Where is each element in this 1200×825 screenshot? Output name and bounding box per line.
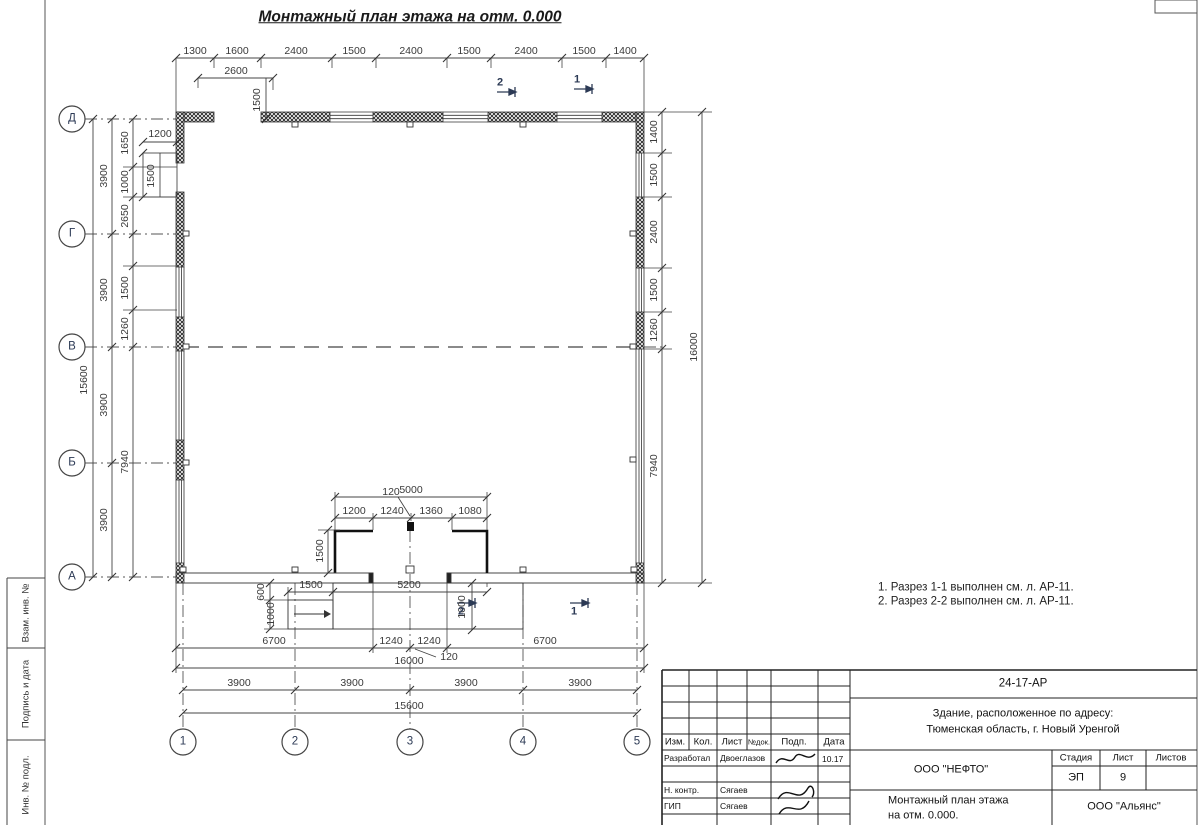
- object-name: Тюменская область, г. Новый Уренгой: [926, 725, 1119, 736]
- stamp-name: Сягаев: [720, 802, 748, 811]
- dim-label: 3900: [340, 678, 363, 689]
- sheet-frame: [45, 0, 1197, 825]
- axis-col-label: 5: [634, 736, 640, 748]
- doc-number: 24-17-АР: [999, 678, 1048, 690]
- drawing-name: на отм. 0.000.: [888, 811, 958, 822]
- strip-label-podpis: Подпись и дата: [21, 660, 31, 728]
- dim-label: 2400: [399, 46, 422, 57]
- stage-label: Стадия: [1060, 753, 1092, 763]
- dim-label: 7940: [120, 450, 131, 473]
- dim-label: 1200: [148, 129, 171, 140]
- dim-label: 1000: [120, 170, 131, 193]
- stamp-role: ГИП: [664, 802, 681, 811]
- stamp-col-ndok: №док.: [748, 738, 770, 746]
- sheets-label: Листов: [1156, 753, 1187, 763]
- design-org: ООО "Альянс": [1087, 802, 1161, 813]
- dim-label: 1080: [458, 506, 481, 517]
- stamp-col-izm: Изм.: [665, 737, 685, 747]
- dim-label: 15600: [394, 701, 423, 712]
- stamp-date: 10.17: [822, 755, 843, 764]
- dim-label: 3900: [227, 678, 250, 689]
- dim-label: 1500: [342, 46, 365, 57]
- dim-label: 3900: [99, 164, 110, 187]
- dim-label: 3900: [99, 278, 110, 301]
- drawing-sheet: Монтажный план этажа на отм. 0.000 1300 …: [0, 0, 1200, 825]
- dim-label: 5000: [399, 485, 422, 496]
- dim-label: 1360: [419, 506, 442, 517]
- dim-label: 3900: [454, 678, 477, 689]
- dim-label: 1500: [252, 88, 263, 111]
- dim-label: 1500: [146, 164, 157, 187]
- dim-label: 2400: [514, 46, 537, 57]
- dim-label: 1500: [315, 539, 326, 562]
- dim-label: 2600: [224, 66, 247, 77]
- stamp-col-list: Лист: [722, 737, 743, 747]
- dim-label: 2400: [284, 46, 307, 57]
- wall-right: [636, 112, 644, 583]
- note-line: 1. Разрез 1-1 выполнен см. л. АР-11.: [878, 582, 1074, 594]
- dim-label: 1260: [120, 317, 131, 340]
- axis-lines: [85, 119, 662, 729]
- stamp-col-data: Дата: [823, 737, 844, 747]
- strip-label-inv: Инв. № подл.: [21, 755, 31, 814]
- wall-top: [176, 112, 644, 122]
- dim-label: 2400: [649, 220, 660, 243]
- axis-row-label: Г: [69, 228, 75, 240]
- dim-label: 1650: [120, 131, 131, 154]
- leader-lines: [398, 497, 436, 657]
- plan-drawing: [0, 0, 1200, 825]
- dim-label: 1200: [342, 506, 365, 517]
- stamp-name: Двоеглазов: [720, 754, 765, 763]
- axis-col-label: 4: [520, 736, 526, 748]
- dim-label: 16000: [394, 656, 423, 667]
- drawing-title: Монтажный план этажа на отм. 0.000: [258, 9, 561, 25]
- dim-label: 5200: [397, 580, 420, 591]
- axis-row-label: Д: [68, 113, 76, 125]
- dim-label: 600: [256, 583, 267, 601]
- vestibule-walls: [335, 522, 487, 573]
- dim-label: 1600: [225, 46, 248, 57]
- axis-col-label: 1: [180, 736, 186, 748]
- axis-bubbles: [59, 106, 650, 755]
- dim-label: 3900: [568, 678, 591, 689]
- note-line: 2. Разрез 2-2 выполнен см. л. АР-11.: [878, 596, 1074, 608]
- dim-label: 1500: [299, 580, 322, 591]
- stamp-role: Разработал: [664, 754, 710, 763]
- drawing-name: Монтажный план этажа: [888, 796, 1009, 807]
- dim-label: 6700: [533, 636, 556, 647]
- customer-company: ООО "НЕФТО": [914, 765, 988, 776]
- dim-label: 1500: [649, 278, 660, 301]
- dim-label: 6700: [262, 636, 285, 647]
- sheet-value: 9: [1120, 773, 1126, 784]
- dim-label: 16000: [689, 332, 700, 361]
- dim-label: 1500: [457, 46, 480, 57]
- section-mark-2: 2: [458, 607, 464, 618]
- section-mark-1: 1: [574, 75, 580, 86]
- axis-col-label: 2: [292, 736, 298, 748]
- section-mark-1: 1: [571, 607, 577, 618]
- dim-label: 1500: [649, 163, 660, 186]
- dim-label: 1240: [380, 506, 403, 517]
- dim-label: 7940: [649, 454, 660, 477]
- object-name: Здание, расположенное по адресу:: [933, 709, 1114, 720]
- dim-label: 1240: [417, 636, 440, 647]
- stage-value: ЭП: [1068, 773, 1084, 784]
- dim-label: 1300: [183, 46, 206, 57]
- axis-row-label: Б: [68, 457, 76, 469]
- stamp-role: Н. контр.: [664, 786, 699, 795]
- axis-row-label: А: [68, 571, 76, 583]
- dim-label: 2650: [120, 204, 131, 227]
- axis-row-label: В: [68, 341, 76, 353]
- dim-label: 1000: [266, 602, 277, 625]
- signatures: [776, 754, 815, 814]
- stamp-col-podp: Подп.: [781, 737, 806, 747]
- axis-col-label: 3: [407, 736, 413, 748]
- stamp-name: Сягаев: [720, 786, 748, 795]
- dim-label: 120: [440, 652, 458, 663]
- sheet-label: Лист: [1113, 753, 1134, 763]
- dim-label: 3900: [99, 393, 110, 416]
- dim-label: 1400: [649, 120, 660, 143]
- dim-label: 1500: [120, 276, 131, 299]
- stamp-col-kol: Кол.: [694, 737, 713, 747]
- strip-label-vzam: Взам. инв. №: [21, 584, 31, 643]
- section-mark-2: 2: [497, 78, 503, 89]
- dim-label: 15600: [79, 365, 90, 394]
- dim-label: 3900: [99, 508, 110, 531]
- dim-label: 1400: [613, 46, 636, 57]
- dim-label: 120: [382, 487, 400, 498]
- dim-label: 1500: [572, 46, 595, 57]
- dim-label: 1260: [649, 318, 660, 341]
- dim-label: 1240: [379, 636, 402, 647]
